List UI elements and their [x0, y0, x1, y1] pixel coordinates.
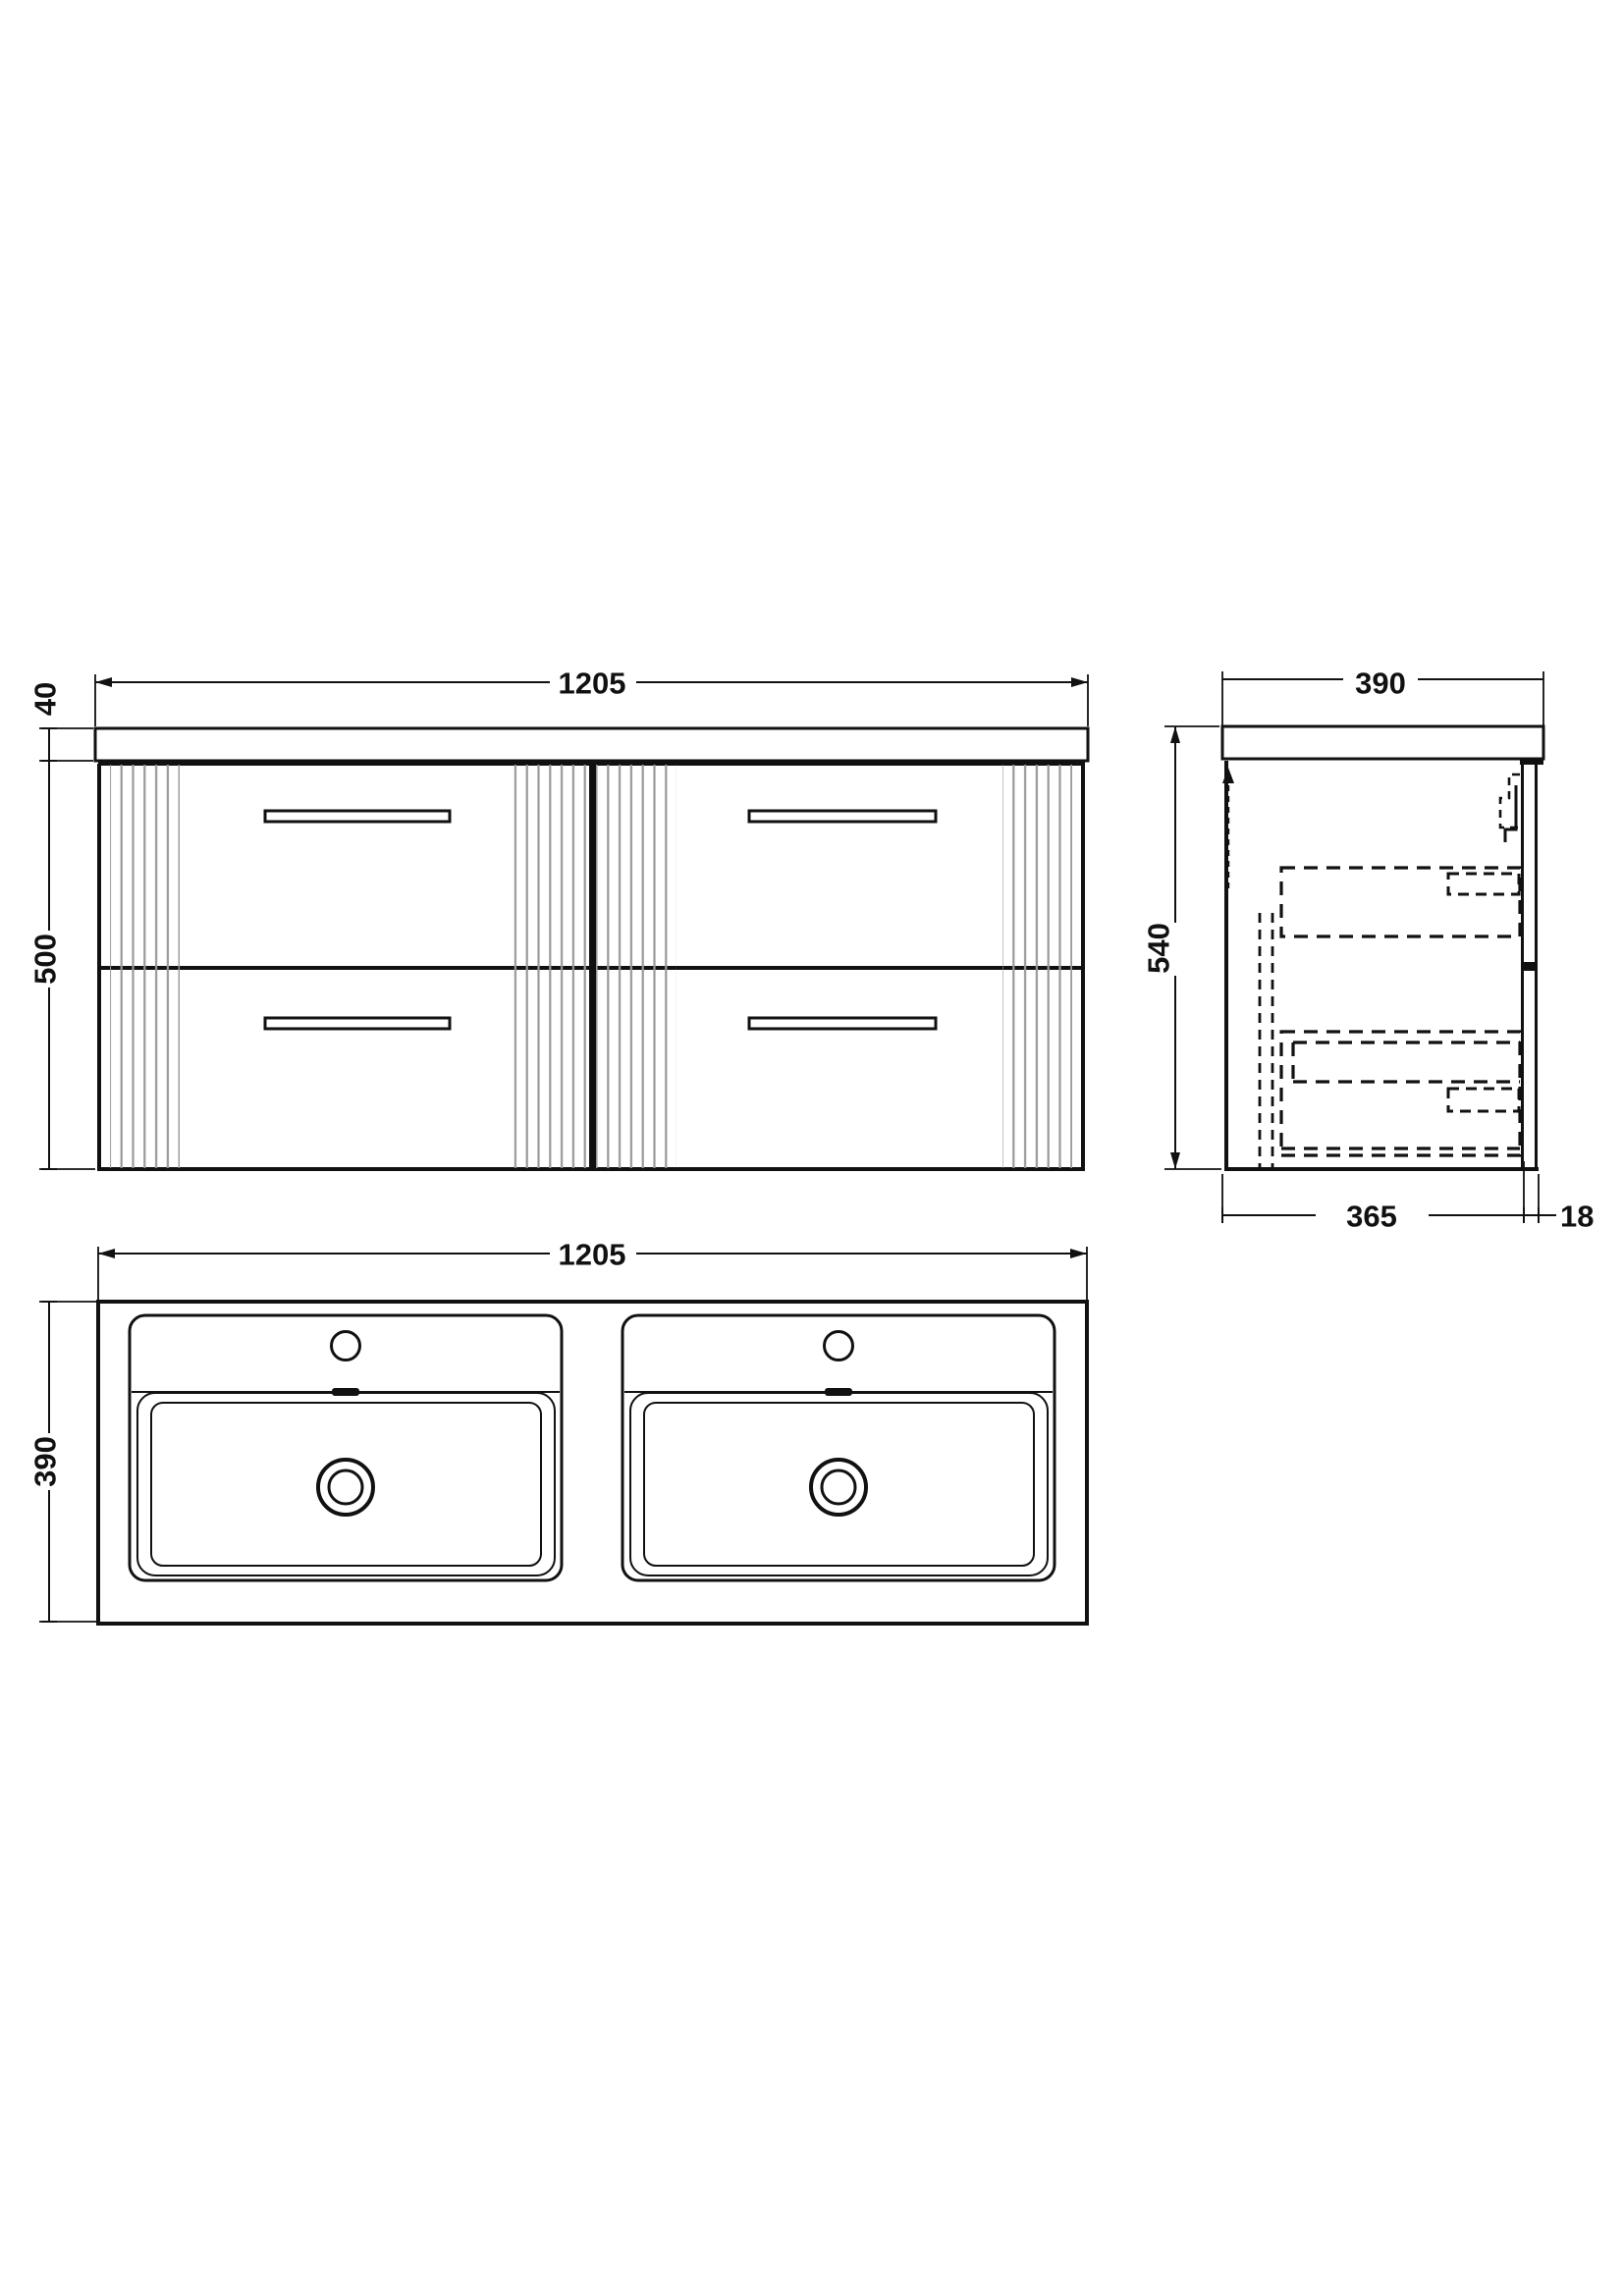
waste-inner — [329, 1470, 362, 1504]
waste-outer — [318, 1460, 373, 1515]
arrowhead-right — [1071, 677, 1088, 687]
fluting-strip-left — [110, 765, 180, 1168]
side-wall-gap-label: 18 — [1560, 1200, 1594, 1234]
soft-close-arrow — [1222, 768, 1234, 783]
bowl-inner — [151, 1403, 541, 1566]
side-worktop — [1222, 726, 1543, 759]
arrowhead-right — [1070, 1249, 1087, 1258]
overflow-slot — [332, 1388, 359, 1396]
fluting-strip-right — [1002, 765, 1072, 1168]
tap-hole — [825, 1332, 853, 1361]
handle-bottom-right-drawer — [749, 1018, 936, 1029]
arrowhead-left — [95, 677, 112, 687]
front-height-dimension: 500 — [28, 761, 96, 1169]
side-upper-runner-bracket-hidden — [1448, 874, 1519, 894]
plan-basin-right — [622, 1315, 1055, 1580]
front-width-dimension: 1205 — [95, 667, 1088, 727]
bowl-outer — [137, 1393, 555, 1575]
vanity-unit-technical-drawing: 1205 40 500 — [0, 0, 1623, 2296]
bowl-outer — [630, 1393, 1048, 1575]
side-lower-drawer-box-hidden — [1281, 1032, 1520, 1155]
side-height-dimension: 540 — [1142, 726, 1222, 1169]
side-view: 390 540 365 18 — [1142, 667, 1595, 1234]
side-worktop-rear-stub — [1520, 759, 1543, 765]
tap-hole — [332, 1332, 360, 1361]
technical-drawing-page: 1205 40 500 — [0, 0, 1623, 2296]
side-rail-notch — [1522, 962, 1538, 971]
plan-depth-dimension: 390 — [28, 1302, 97, 1622]
overflow-slot — [825, 1388, 852, 1396]
side-width-label: 390 — [1355, 667, 1406, 701]
front-height-label: 500 — [28, 934, 63, 985]
arrowhead-left — [98, 1249, 115, 1258]
waste-inner — [822, 1470, 855, 1504]
side-wall-bracket-step — [1505, 785, 1516, 842]
side-lower-runner-bracket-hidden — [1448, 1089, 1519, 1111]
side-width-dimension: 390 — [1222, 667, 1543, 727]
side-upper-drawer-box-hidden — [1281, 868, 1520, 936]
handle-bottom-left-drawer — [265, 1018, 450, 1029]
handle-top-right-drawer — [749, 811, 936, 822]
bowl-inner — [644, 1403, 1034, 1566]
plan-depth-label: 390 — [28, 1436, 63, 1487]
basin-outline — [130, 1315, 562, 1580]
plan-view: 1205 390 — [28, 1238, 1088, 1625]
handle-top-left-drawer — [265, 811, 450, 822]
front-worktop-dimension: 40 — [28, 682, 94, 761]
plan-width-label: 1205 — [559, 1238, 626, 1272]
fluting-strip-center-right — [596, 765, 676, 1168]
side-height-label: 540 — [1142, 923, 1176, 974]
front-center-divider — [589, 764, 596, 1168]
side-cabinet-depth-label: 365 — [1346, 1200, 1397, 1234]
front-width-label: 1205 — [559, 667, 626, 701]
front-view: 1205 40 500 — [28, 667, 1089, 1172]
waste-outer — [811, 1460, 866, 1515]
front-worktop-label: 40 — [28, 682, 63, 716]
side-cabinet-bottom-edge — [1224, 1167, 1539, 1171]
plan-width-dimension: 1205 — [98, 1238, 1087, 1301]
front-worktop — [95, 728, 1088, 761]
side-depth-dimension: 365 18 — [1222, 1161, 1594, 1234]
plan-basin-left — [130, 1315, 562, 1580]
fluting-strip-center-left — [507, 765, 589, 1168]
basin-outline — [622, 1315, 1055, 1580]
